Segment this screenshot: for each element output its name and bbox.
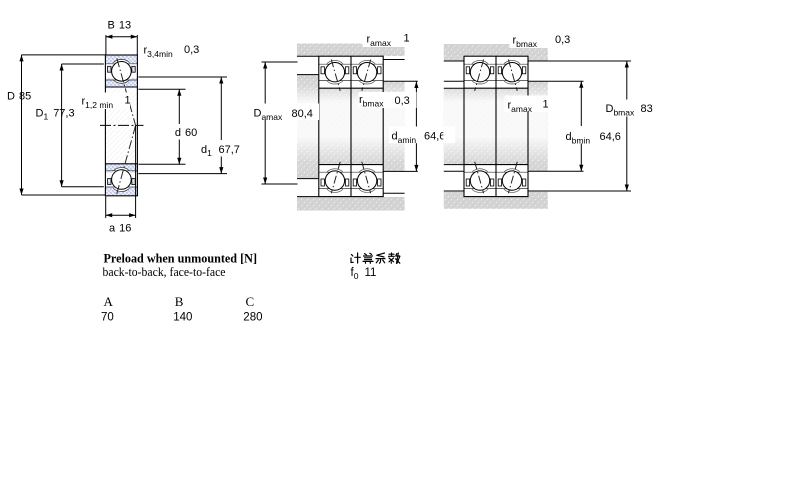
- svg-text:D85: D85: [7, 90, 31, 102]
- svg-text:140: 140: [173, 312, 192, 324]
- svg-text:67,7: 67,7: [219, 144, 240, 156]
- svg-text:280: 280: [243, 312, 262, 324]
- svg-text:0,3: 0,3: [395, 95, 410, 107]
- svg-text:80,4: 80,4: [292, 108, 313, 120]
- svg-text:D177,3: D177,3: [36, 108, 75, 122]
- svg-text:0,3: 0,3: [555, 34, 570, 46]
- svg-text:70: 70: [101, 312, 114, 324]
- svg-text:a16: a16: [109, 223, 131, 235]
- svg-text:1: 1: [125, 95, 131, 107]
- svg-text:A: A: [104, 294, 114, 309]
- svg-text:83: 83: [641, 103, 653, 115]
- svg-text:0,3: 0,3: [184, 44, 199, 56]
- svg-text:B13: B13: [108, 20, 132, 32]
- svg-text:back-to-back, face-to-face: back-to-back, face-to-face: [103, 264, 226, 279]
- svg-text:d60: d60: [175, 127, 197, 139]
- svg-text:64,6: 64,6: [600, 131, 621, 143]
- svg-text:B: B: [175, 294, 184, 309]
- svg-text:64,6: 64,6: [424, 131, 445, 143]
- svg-text:1: 1: [404, 33, 410, 45]
- svg-text:C: C: [246, 294, 255, 309]
- svg-text:1: 1: [543, 99, 549, 111]
